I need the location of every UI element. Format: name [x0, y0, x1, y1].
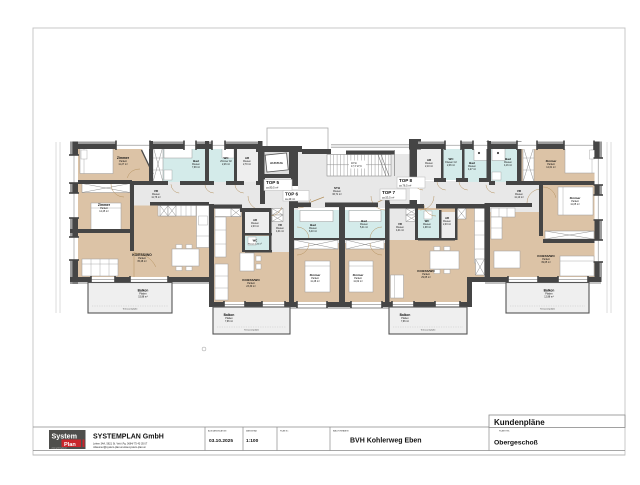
svg-text:4,01 m²: 4,01 m² [396, 229, 404, 232]
svg-text:ca.53,5 m²: ca.53,5 m² [382, 196, 394, 200]
svg-text:12,88 m²: 12,88 m² [544, 296, 554, 299]
svg-text:2,06 m²: 2,06 m² [447, 164, 455, 167]
svg-text:4,01 m²: 4,01 m² [276, 230, 284, 233]
svg-text:ca.80,5 m²: ca.80,5 m² [266, 186, 278, 190]
svg-text:5,41 m²: 5,41 m² [360, 226, 368, 229]
svg-text:TOP 6: TOP 6 [285, 192, 299, 197]
svg-text:23,30 m²: 23,30 m² [246, 285, 256, 288]
svg-text:Fliesen 1,40 m²: Fliesen 1,40 m² [248, 242, 262, 245]
svg-text:SYSTEMPLAN GmbH: SYSTEMPLAN GmbH [93, 434, 164, 441]
svg-text:TOP 5: TOP 5 [266, 180, 280, 185]
svg-text:12,61 m²: 12,61 m² [546, 166, 556, 169]
svg-text:4,27 m²: 4,27 m² [468, 168, 476, 171]
svg-text:2,70 m²: 2,70 m² [243, 163, 251, 166]
svg-text:39,05 m²: 39,05 m² [541, 261, 551, 264]
svg-text:ca.76,5 m²: ca.76,5 m² [399, 184, 411, 188]
svg-text:ca.49 m²: ca.49 m² [285, 197, 295, 201]
svg-text:11,10 m²: 11,10 m² [514, 196, 523, 199]
svg-text:AUSGANGSDATUM: AUSGANGSDATUM [208, 430, 227, 433]
svg-text:WC: WC [253, 239, 258, 243]
svg-text:11,27 m²: 11,27 m² [118, 163, 127, 166]
svg-text:7,99 m²: 7,99 m² [192, 166, 200, 169]
svg-text:35,28 m²: 35,28 m² [137, 260, 147, 263]
svg-text:2,10 m²: 2,10 m² [425, 165, 433, 168]
svg-text:Terrassenplatte: Terrassenplatte [540, 308, 556, 311]
svg-text:2,26 m²: 2,26 m² [222, 163, 230, 166]
svg-text:i.klausner@system-plan.at www: i.klausner@system-plan.at www.system-pla… [93, 446, 146, 449]
svg-text:15,88 m²: 15,88 m² [138, 296, 148, 299]
svg-text:1,98 m²: 1,98 m² [423, 226, 431, 229]
svg-text:11,05 m²: 11,05 m² [570, 203, 579, 206]
svg-text:11,48 m²: 11,48 m² [310, 280, 319, 283]
svg-text:PLAN Nr.:: PLAN Nr.: [280, 430, 289, 433]
svg-text:2,03 m²: 2,03 m² [251, 225, 259, 228]
svg-text:29,05 m²: 29,05 m² [421, 276, 431, 279]
svg-text:Terrassenplatte: Terrassenplatte [421, 329, 437, 332]
svg-text:4,16 m²: 4,16 m² [504, 164, 512, 167]
svg-text:17,7/ 27,9: 17,7/ 27,9 [351, 165, 362, 168]
svg-text:BVH Kohlerweg Eben: BVH Kohlerweg Eben [350, 438, 422, 445]
svg-text:TOP 7: TOP 7 [382, 190, 396, 195]
svg-text:03.10.2025: 03.10.2025 [209, 438, 233, 444]
svg-text:System: System [52, 432, 78, 441]
svg-text:PLANTITEL:: PLANTITEL: [499, 430, 511, 433]
svg-text:www.system-plan.at: www.system-plan.at [52, 446, 68, 449]
svg-text:MASSSTAB: MASSSTAB [246, 430, 257, 433]
svg-text:7,96 m²: 7,96 m² [225, 320, 233, 323]
svg-text:7,96 m²: 7,96 m² [401, 320, 409, 323]
svg-text:6,40 m²: 6,40 m² [309, 230, 317, 233]
svg-text:36,71 m²: 36,71 m² [332, 193, 342, 196]
svg-text:Kundenpläne: Kundenpläne [494, 418, 545, 427]
svg-text:2,03 m²: 2,03 m² [443, 223, 451, 226]
svg-text:11,62 m²: 11,62 m² [353, 280, 362, 283]
svg-text:Obergeschoß: Obergeschoß [494, 440, 538, 447]
svg-text:11,76 m²: 11,76 m² [151, 196, 160, 199]
svg-text:1:100: 1:100 [246, 438, 259, 444]
svg-text:TOP 8: TOP 8 [399, 178, 413, 183]
svg-text:Terrassenplatte: Terrassenplatte [244, 329, 260, 332]
svg-text:Terrassenplatte: Terrassenplatte [123, 308, 139, 311]
svg-text:BAUVORHABEN:: BAUVORHABEN: [333, 430, 349, 433]
svg-text:12,25 m²: 12,25 m² [99, 210, 109, 213]
svg-text:AUFZUG: AUFZUG [270, 161, 283, 165]
